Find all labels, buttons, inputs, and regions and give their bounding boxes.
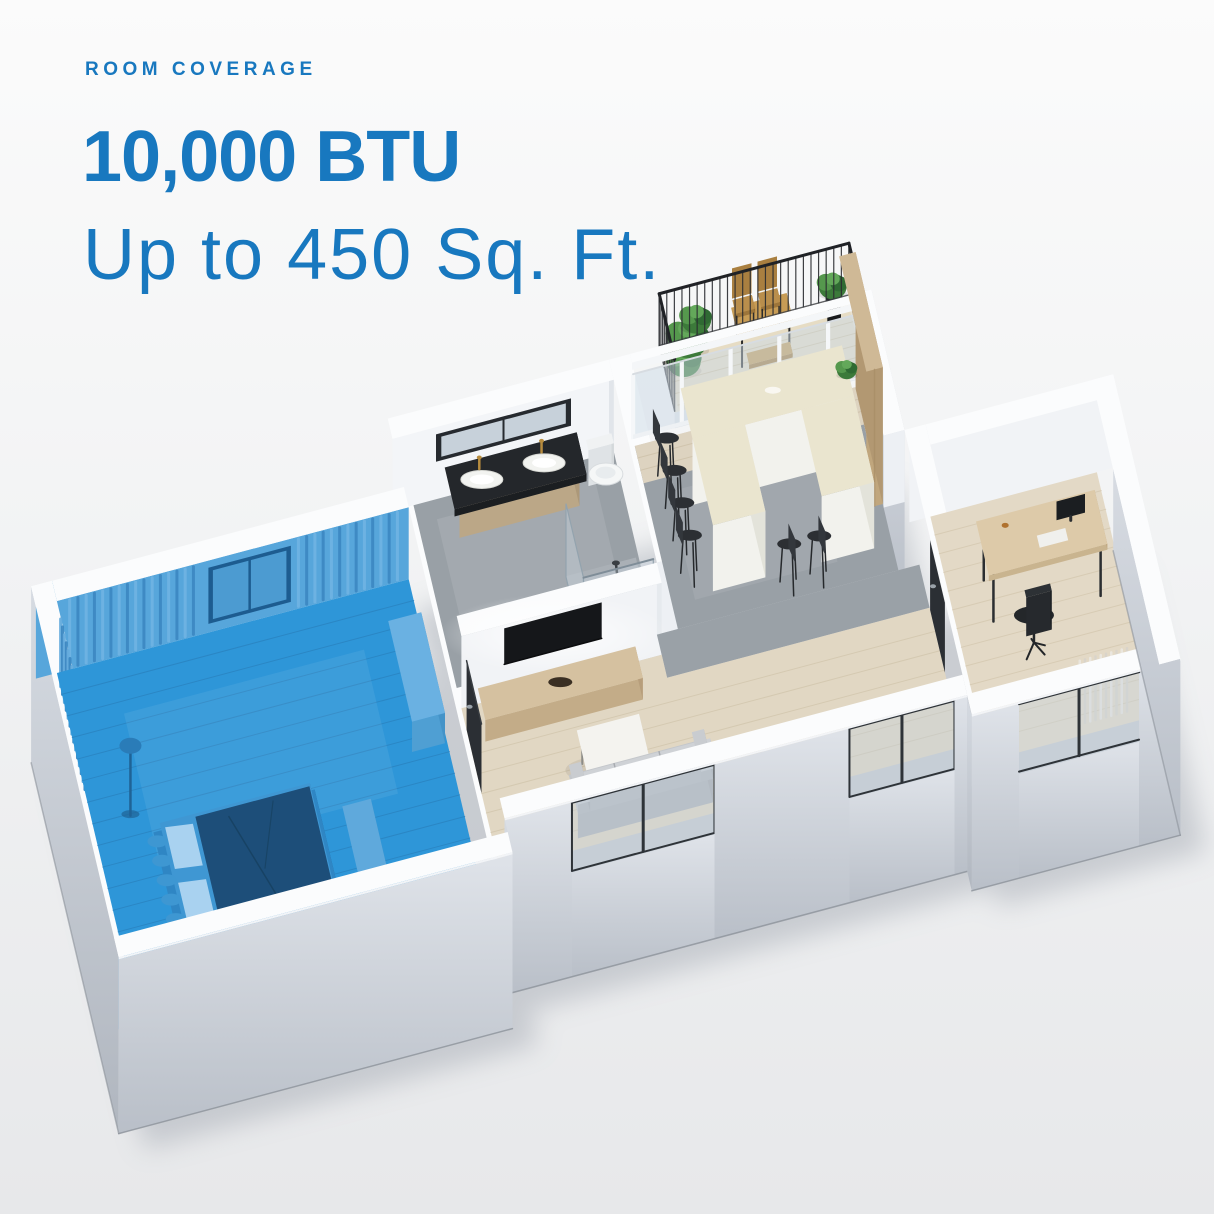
- promo-image: ROOM COVERAGE 10,000 BTU Up to 450 Sq. F…: [0, 0, 1214, 1214]
- text-block: ROOM COVERAGE 10,000 BTU Up to 450 Sq. F…: [85, 60, 661, 291]
- btu-rating: 10,000 BTU: [82, 121, 661, 193]
- coverage-area: Up to 450 Sq. Ft.: [83, 219, 661, 291]
- eyebrow-label: ROOM COVERAGE: [85, 60, 661, 79]
